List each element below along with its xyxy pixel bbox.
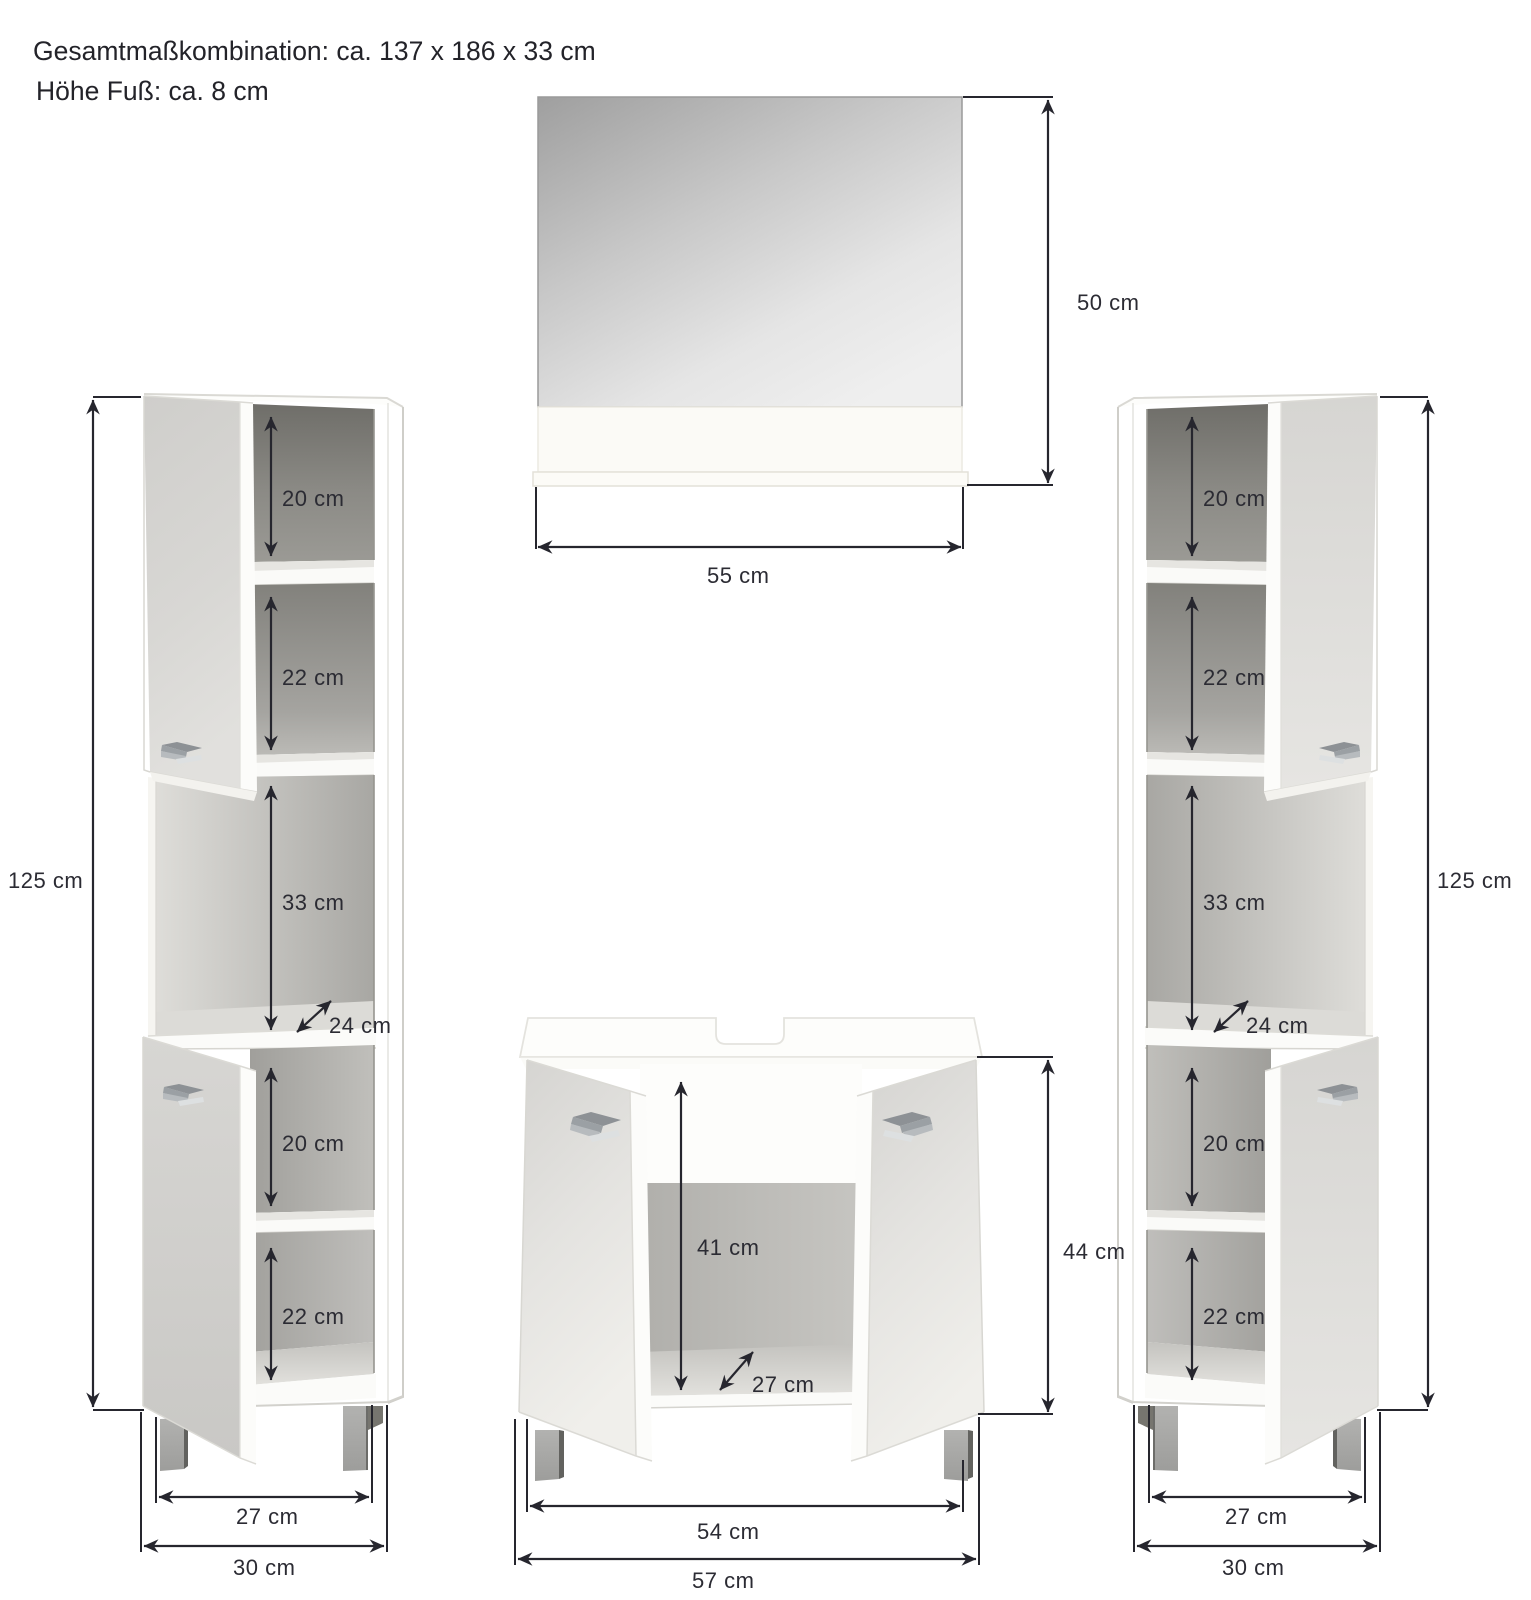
svg-text:20 cm: 20 cm <box>1203 1131 1265 1156</box>
svg-text:22 cm: 22 cm <box>282 665 344 690</box>
svg-text:54 cm: 54 cm <box>697 1519 759 1544</box>
svg-text:50 cm: 50 cm <box>1077 290 1139 315</box>
svg-text:24 cm: 24 cm <box>1246 1013 1308 1038</box>
svg-text:27 cm: 27 cm <box>236 1504 298 1529</box>
svg-text:27 cm: 27 cm <box>1225 1504 1287 1529</box>
svg-text:Gesamtmaßkombination: ca. 137: Gesamtmaßkombination: ca. 137 x 186 x 33… <box>33 36 596 66</box>
svg-text:22 cm: 22 cm <box>1203 1304 1265 1329</box>
svg-text:30 cm: 30 cm <box>233 1555 295 1580</box>
svg-text:22 cm: 22 cm <box>282 1304 344 1329</box>
svg-text:20 cm: 20 cm <box>1203 486 1265 511</box>
svg-text:20 cm: 20 cm <box>282 486 344 511</box>
svg-text:125 cm: 125 cm <box>1437 868 1512 893</box>
svg-text:22 cm: 22 cm <box>1203 665 1265 690</box>
svg-text:55 cm: 55 cm <box>707 563 769 588</box>
svg-text:Höhe Fuß: ca. 8 cm: Höhe Fuß: ca. 8 cm <box>36 76 269 106</box>
svg-text:57 cm: 57 cm <box>692 1568 754 1593</box>
svg-text:125 cm: 125 cm <box>8 868 83 893</box>
svg-text:27 cm: 27 cm <box>752 1372 814 1397</box>
svg-text:30 cm: 30 cm <box>1222 1555 1284 1580</box>
svg-text:33 cm: 33 cm <box>1203 890 1265 915</box>
svg-text:41 cm: 41 cm <box>697 1235 759 1260</box>
svg-text:24 cm: 24 cm <box>329 1013 391 1038</box>
svg-text:33 cm: 33 cm <box>282 890 344 915</box>
svg-text:44 cm: 44 cm <box>1063 1239 1125 1264</box>
svg-text:20 cm: 20 cm <box>282 1131 344 1156</box>
